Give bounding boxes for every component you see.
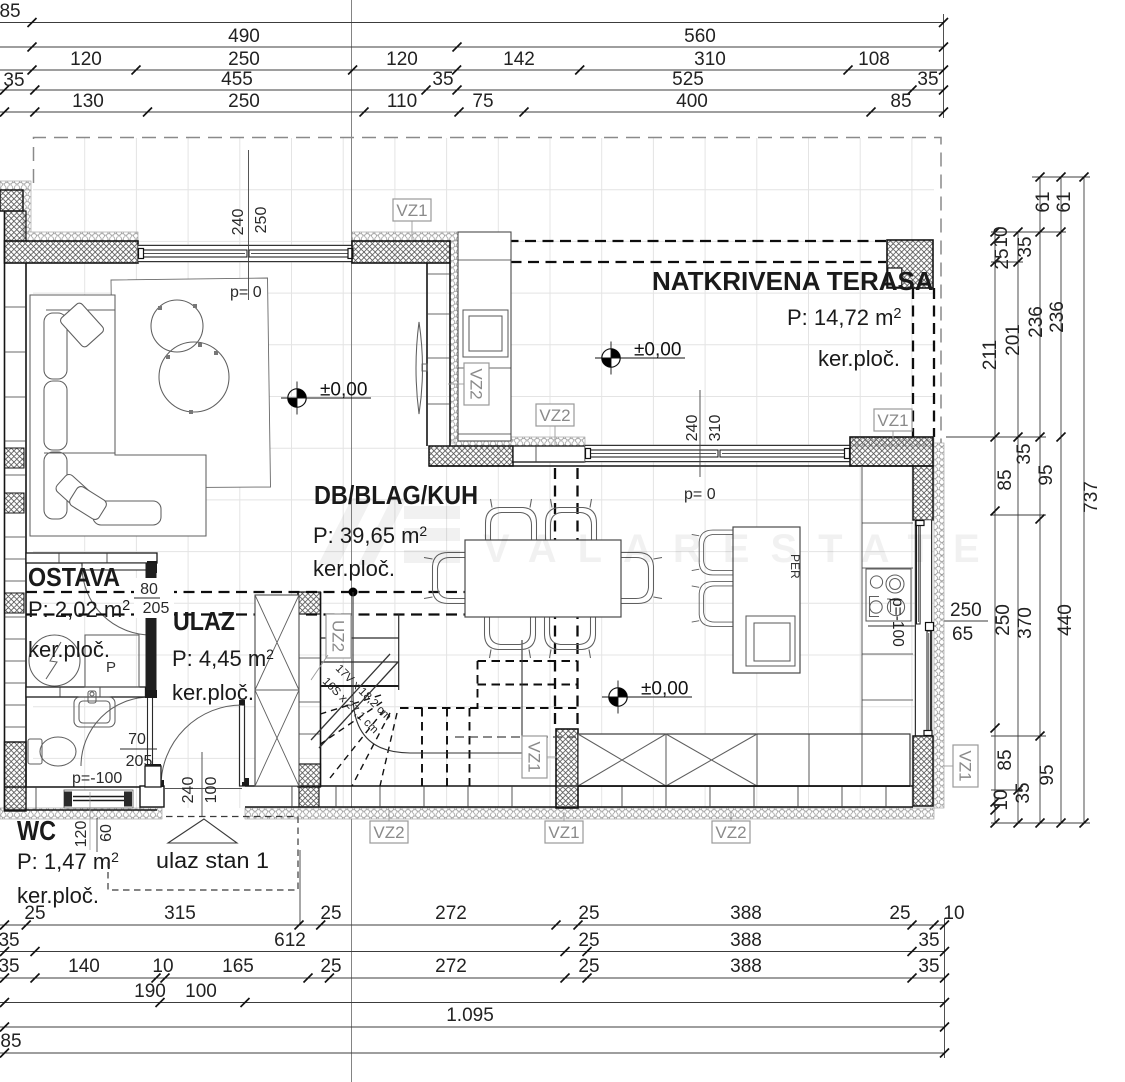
svg-text:35: 35 [432, 69, 453, 90]
svg-text:388: 388 [730, 903, 762, 924]
svg-text:35: 35 [1015, 236, 1036, 257]
svg-text:310: 310 [707, 415, 724, 442]
svg-text:10: 10 [152, 956, 173, 977]
svg-text:ker.ploč.: ker.ploč. [17, 883, 99, 908]
svg-text:UZ2: UZ2 [329, 620, 348, 652]
svg-text:490: 490 [228, 26, 260, 47]
svg-text:35: 35 [918, 930, 939, 951]
svg-text:VZ2: VZ2 [715, 823, 746, 842]
svg-text:201: 201 [1003, 324, 1024, 356]
svg-text:70: 70 [128, 731, 146, 748]
svg-text:25: 25 [320, 903, 341, 924]
svg-text:85: 85 [995, 469, 1016, 490]
svg-text:400: 400 [676, 91, 708, 112]
svg-text:100: 100 [185, 981, 217, 1002]
svg-text:130: 130 [72, 91, 104, 112]
svg-text:205: 205 [126, 753, 153, 770]
svg-text:25: 25 [578, 930, 599, 951]
svg-text:35: 35 [0, 930, 20, 951]
svg-text:190: 190 [134, 981, 166, 1002]
svg-text:p=-100: p=-100 [72, 770, 122, 787]
svg-text:35: 35 [917, 69, 938, 90]
svg-text:VZ1: VZ1 [956, 750, 975, 781]
svg-text:VZ1: VZ1 [525, 741, 544, 772]
svg-text:110: 110 [387, 91, 417, 112]
svg-text:142: 142 [503, 49, 535, 70]
svg-text:370: 370 [1015, 607, 1036, 639]
svg-text:P: 14,72 m2: P: 14,72 m2 [787, 305, 901, 330]
svg-text:236: 236 [1026, 306, 1047, 338]
svg-text:VZ2: VZ2 [467, 368, 486, 399]
svg-text:440: 440 [1055, 604, 1076, 636]
svg-text:61: 61 [1033, 191, 1054, 212]
svg-text:VZ1: VZ1 [877, 411, 908, 430]
svg-text:737: 737 [1081, 481, 1102, 513]
svg-text:OSTAVA: OSTAVA [28, 562, 120, 592]
svg-text:310: 310 [694, 49, 726, 70]
svg-text:560: 560 [684, 26, 716, 47]
svg-text:35: 35 [3, 70, 24, 91]
svg-text:±0,00: ±0,00 [641, 679, 688, 700]
svg-text:VZ2: VZ2 [539, 406, 570, 425]
svg-text:±0,00: ±0,00 [634, 340, 681, 361]
svg-text:p=-100: p=-100 [889, 598, 906, 647]
svg-text:75: 75 [472, 91, 493, 112]
svg-text:120: 120 [73, 821, 90, 848]
svg-text:25: 25 [578, 903, 599, 924]
svg-text:205: 205 [143, 600, 170, 617]
svg-text:ker.ploč.: ker.ploč. [172, 680, 254, 705]
svg-text:140: 140 [68, 956, 100, 977]
svg-text:95: 95 [1037, 764, 1058, 785]
svg-text:525: 525 [672, 69, 704, 90]
svg-text:35: 35 [918, 956, 939, 977]
svg-text:25: 25 [578, 956, 599, 977]
svg-text:VZ1: VZ1 [548, 823, 579, 842]
svg-text:VALARESTATE: VALARESTATE [483, 527, 1001, 571]
svg-text:95: 95 [1036, 464, 1057, 485]
svg-text:250: 250 [228, 49, 260, 70]
svg-text:85: 85 [0, 1031, 21, 1052]
svg-text:455: 455 [221, 69, 253, 90]
svg-text:240: 240 [180, 777, 197, 804]
svg-text:388: 388 [730, 930, 762, 951]
svg-text:1.095: 1.095 [446, 1005, 494, 1026]
svg-text:120: 120 [70, 49, 102, 70]
svg-text:ULAZ: ULAZ [173, 606, 235, 636]
svg-text:WC: WC [17, 815, 56, 846]
svg-text:250: 250 [950, 600, 982, 621]
svg-text:236: 236 [1047, 301, 1068, 333]
svg-text:10: 10 [991, 789, 1012, 810]
svg-text:612: 612 [274, 930, 306, 951]
svg-text:25: 25 [992, 248, 1013, 269]
svg-text:165: 165 [222, 956, 254, 977]
svg-text:108: 108 [858, 49, 890, 70]
svg-text:100: 100 [203, 777, 220, 804]
svg-text:211: 211 [980, 340, 1001, 370]
svg-text:85: 85 [890, 91, 911, 112]
svg-text:±0,00: ±0,00 [320, 380, 367, 401]
svg-text:61: 61 [1054, 191, 1075, 212]
svg-text:10: 10 [991, 226, 1012, 247]
svg-text:p= 0: p= 0 [230, 284, 262, 301]
svg-text:388: 388 [730, 956, 762, 977]
svg-text:250: 250 [228, 91, 260, 112]
svg-text:80: 80 [140, 581, 158, 598]
svg-text:35: 35 [1013, 782, 1034, 803]
svg-text:65: 65 [952, 624, 973, 645]
svg-text:240: 240 [684, 415, 701, 442]
svg-text:60: 60 [98, 824, 115, 842]
svg-text:VZ1: VZ1 [396, 201, 427, 220]
svg-text:250: 250 [993, 604, 1014, 636]
svg-text:p= 0: p= 0 [684, 486, 716, 503]
svg-text:240: 240 [230, 209, 247, 236]
svg-text:250: 250 [253, 207, 270, 234]
svg-text:NATKRIVENA TERASA: NATKRIVENA TERASA [652, 266, 934, 296]
svg-text:10: 10 [943, 903, 964, 924]
svg-text:272: 272 [435, 903, 467, 924]
svg-text:85: 85 [0, 1, 21, 22]
svg-text:VZ2: VZ2 [373, 823, 404, 842]
svg-text:P: 2,02 m2: P: 2,02 m2 [28, 597, 130, 622]
svg-text:120: 120 [386, 49, 418, 70]
svg-text:85: 85 [995, 749, 1016, 770]
svg-text:ker.ploč.: ker.ploč. [818, 346, 900, 371]
svg-text:272: 272 [435, 956, 467, 977]
svg-text:35: 35 [0, 956, 20, 977]
svg-text:315: 315 [164, 903, 196, 924]
svg-text:ulaz stan 1: ulaz stan 1 [156, 848, 269, 873]
svg-text:25: 25 [320, 956, 341, 977]
svg-text:P: 1,47 m2: P: 1,47 m2 [17, 849, 119, 874]
svg-text:25: 25 [889, 903, 910, 924]
svg-text:ker.ploč.: ker.ploč. [28, 637, 110, 662]
svg-text:P: 4,45 m2: P: 4,45 m2 [172, 646, 274, 671]
svg-text:35: 35 [1014, 443, 1035, 464]
